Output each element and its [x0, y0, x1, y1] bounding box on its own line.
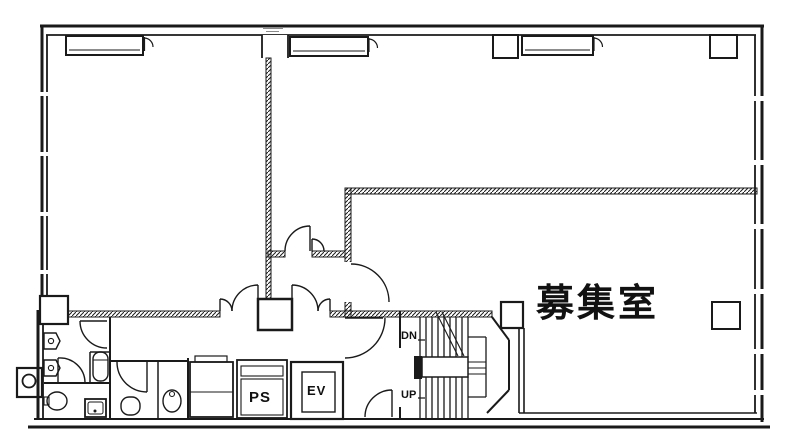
shelf-unit	[190, 356, 233, 417]
staircase	[400, 311, 509, 419]
door-wash-area	[58, 358, 85, 383]
pipe-space-label: PS	[249, 389, 271, 406]
facade-niche	[262, 35, 288, 58]
door-stair-hall	[365, 390, 392, 417]
east-room-walls	[519, 328, 757, 413]
side-window-gaps	[39, 92, 764, 395]
window-2-swing-icon	[369, 38, 378, 52]
facade-windows	[66, 35, 737, 58]
restroom-fixtures	[44, 333, 181, 417]
tiny-annotation-mark	[263, 28, 283, 29]
floor-plan-drawing	[0, 0, 787, 440]
door-to-room-east	[351, 264, 389, 302]
column-corridor	[258, 299, 292, 330]
door-stall-a	[117, 362, 147, 392]
window-3-swing-icon	[594, 37, 603, 51]
tiny-annotation-mark	[266, 31, 279, 32]
corridor-wall-west	[48, 311, 220, 317]
door-left-office-main	[232, 285, 258, 311]
column-east	[712, 302, 740, 329]
stair-up-label: UP	[401, 389, 416, 401]
partition-wall-vertical-left	[266, 58, 271, 302]
partition-wall-horizontal	[345, 188, 757, 194]
stair-down-label: DN	[401, 330, 417, 342]
window-1	[66, 36, 143, 55]
door-mens-room	[80, 321, 107, 348]
sink-icon	[44, 392, 67, 410]
door-corridor-stair	[345, 318, 385, 358]
door-mid-room-main	[285, 226, 310, 251]
stair-landing-wall	[414, 356, 422, 379]
toilet-icon	[121, 397, 140, 415]
door-kitchen-main	[292, 285, 318, 311]
pilaster-2	[710, 35, 737, 58]
stair-treads-lower	[420, 377, 468, 419]
outer-walls	[28, 26, 770, 427]
toilet-icon	[93, 352, 108, 381]
window-3	[522, 36, 593, 55]
door-kitchen-small	[318, 299, 330, 311]
door-mid-room-small	[312, 239, 324, 251]
corridor-wall-east	[400, 311, 492, 317]
stair-treads-upper	[420, 317, 468, 357]
room-label: 募集室	[536, 272, 659, 327]
stair-core-wall	[468, 337, 486, 397]
slop-sink-icon	[85, 399, 106, 417]
elevator-label: EV	[307, 383, 326, 398]
stair-landing	[422, 357, 468, 377]
column-west	[40, 296, 68, 324]
floor-plan-page: 募集室 DN UP PS EV	[0, 0, 787, 440]
urinal-icon	[44, 333, 60, 349]
window-2	[290, 37, 368, 56]
door-left-office-small	[220, 299, 232, 311]
window-1-swing-icon	[145, 37, 154, 51]
column-stair	[501, 302, 523, 328]
stair-chamfer-wall	[487, 317, 509, 413]
pilaster-1	[493, 35, 518, 58]
corridor-wall-mid	[330, 311, 400, 317]
toilet-icon	[163, 390, 181, 412]
door-opening	[344, 262, 352, 302]
restroom-walls	[44, 317, 188, 419]
